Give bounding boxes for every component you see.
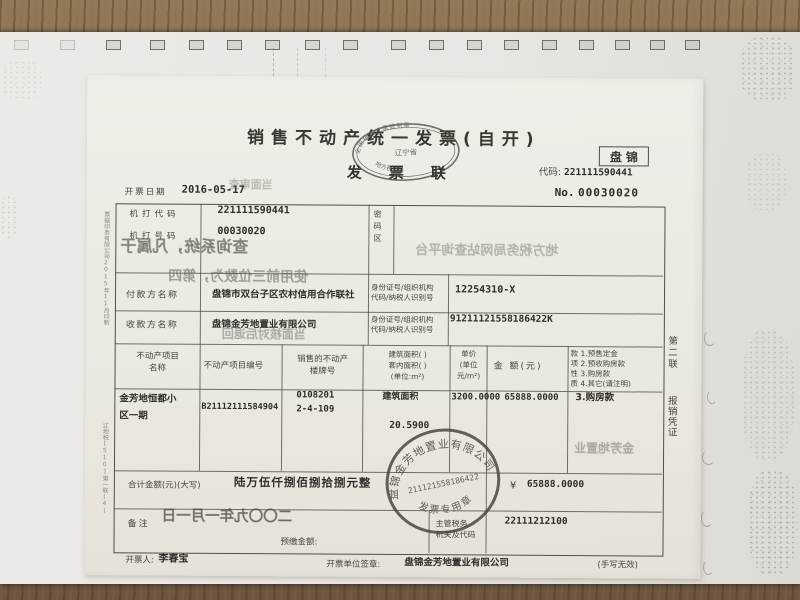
bleed-line2: 使用前三位数为，第四 <box>168 269 308 287</box>
company-seal: 盘锦金芳地置业有限公司 211121558186422 发票专用章 <box>372 413 515 549</box>
prepaid-label: 预缴金额: <box>280 537 317 547</box>
copy-name: 发票联 <box>347 164 473 183</box>
region-name: 盘锦 <box>610 148 642 165</box>
issuer-label: 开票人: <box>125 555 153 565</box>
col-unit-price: 单价 (单位 元/m²) <box>452 348 486 381</box>
seal-caption: 发票专用章 <box>415 488 478 521</box>
machine-code-value: 221111590441 <box>218 205 290 217</box>
date-label: 开票日期 <box>125 187 167 197</box>
payee-label: 收款方名称 <box>126 320 179 331</box>
bleed-line1: 查询系统，凡属于 <box>120 236 248 256</box>
payee-id: 91211121558186422K <box>450 313 553 325</box>
col-project-no: 不动产项目编号 <box>204 361 264 372</box>
item-amount: 65888.0000 <box>504 393 558 404</box>
bleed-header: 当面审查 <box>229 178 273 191</box>
svg-text:盘锦金芳地置业有限公司: 盘锦金芳地置业有限公司 <box>376 428 500 503</box>
copy-number-vertical: 第二联 <box>666 336 678 371</box>
password-area-label: 密码区 <box>372 210 382 246</box>
payer-label: 付款方名称 <box>126 290 179 301</box>
region-box: 盘锦 <box>599 146 649 166</box>
issuing-unit-label: 开票单位签章: <box>326 560 380 571</box>
copy-use-vertical: 报销凭证 <box>665 396 677 438</box>
item-unit-price: 3200.0000 <box>451 392 500 403</box>
item-unit-no: 2-4-109 <box>296 404 334 415</box>
total-amount: 65888.0000 <box>527 479 584 491</box>
total-label: 合计金额(元)(大写) <box>128 480 201 491</box>
issuer-name: 李春宝 <box>158 554 188 566</box>
invoice-photo: 销售不动产统一发票(自开) 全国统一发票监制章 辽宁省 地方税务局 发票联 盘锦… <box>0 0 800 600</box>
item-name: 金芳地恒都小 区一期 <box>119 390 176 424</box>
printer-imprint-top: 票据印务有限公司2015年11月印制 <box>102 211 110 325</box>
total-in-words: 陆万伍仟捌佰捌拾捌元整 <box>234 476 372 491</box>
item-area-type: 建筑面积 <box>382 392 418 403</box>
seal-number: 211121558186422 <box>407 472 480 495</box>
col-name: 不动产项目 名称 <box>122 350 194 374</box>
invoice-number: No. 00030020 <box>555 186 639 200</box>
payee-name: 盘锦金芳地置业有限公司 <box>212 319 317 331</box>
code-value: 221111590441 <box>564 167 633 178</box>
bleed-line1b: 地方税务局网站查询平台 <box>415 243 558 259</box>
number-value: 00030020 <box>578 186 639 199</box>
col-amount: 金 额(元) <box>494 362 543 373</box>
col-building: 销售的不动产 楼牌号 <box>286 353 360 377</box>
payer-id: 12254310-X <box>455 284 515 296</box>
machine-code-label: 机打代码 <box>129 209 179 219</box>
issuing-unit-name: 盘锦金芳地置业有限公司 <box>404 557 509 569</box>
item-project-no: B21112111584904 <box>201 402 278 413</box>
currency-symbol: ¥ <box>510 481 516 493</box>
tax-authority-code: 22111212100 <box>505 516 568 528</box>
col-area: 建筑面积( ) 套内面积( ) (单位:m²) <box>367 349 447 382</box>
stamp-province: 辽宁省 <box>394 146 417 157</box>
invoice-code: 代码: 221111590441 <box>539 167 633 179</box>
code-label: 代码: <box>539 167 561 178</box>
remarks-label: 备注 <box>128 519 150 530</box>
number-label: No. <box>555 186 575 199</box>
handwriting-invalid-note: (手写无效) <box>597 560 638 570</box>
bleed-nature: 金芳地置业 <box>574 441 634 456</box>
bleed-date: 二〇〇九年一月一日 <box>162 509 293 527</box>
item-building-no: 0108201 <box>296 390 334 401</box>
printer-imprint-bottom: 辽地税[510]第一联(4) <box>101 422 109 514</box>
seal-company-name: 盘锦金芳地置业有限公司 <box>376 428 500 503</box>
payer-id-label: 身份证号/组织机构 代码/纳税人识别号 <box>371 283 434 302</box>
payee-id-label: 身份证号/组织机构 代码/纳税人识别号 <box>371 315 434 334</box>
payment-nature-options: 款 1.预售定金 项 2.预收购房款 性 3.购房款 质 4.其它(请注明) <box>570 349 631 389</box>
payment-nature-selected: 3.购房款 <box>575 392 614 404</box>
payer-name: 盘锦市双台子区农村信用合作联社 <box>212 289 355 301</box>
svg-text:发票专用章: 发票专用章 <box>415 488 478 521</box>
